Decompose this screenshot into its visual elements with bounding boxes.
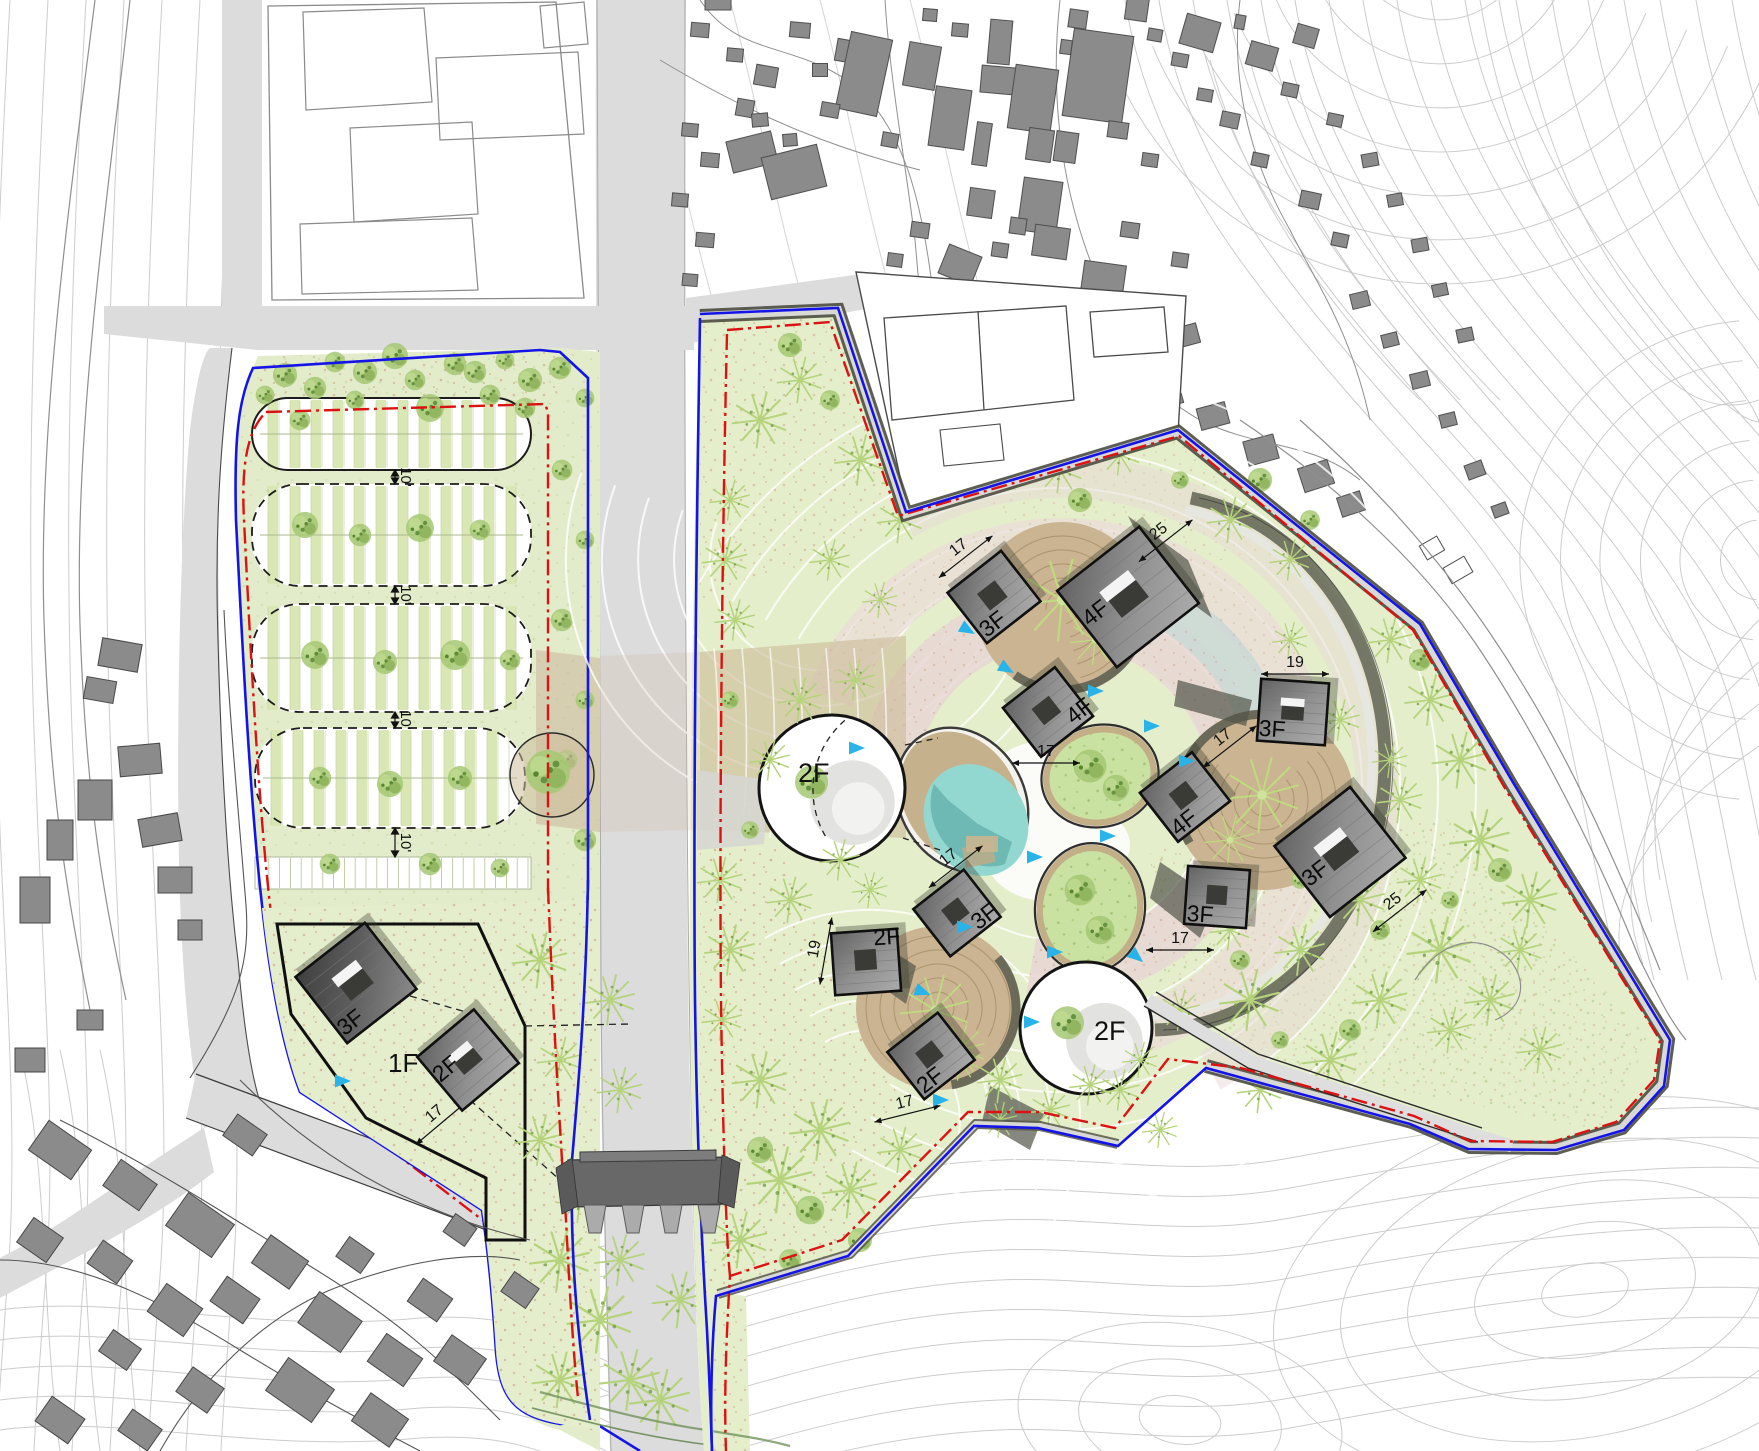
svg-text:2F: 2F [872,923,901,951]
svg-text:3F: 3F [1258,715,1287,743]
svg-text:2F: 2F [798,758,830,788]
svg-text:10': 10' [397,585,414,605]
svg-text:2F: 2F [1094,1016,1126,1046]
svg-text:17: 17 [1171,930,1189,947]
svg-text:10': 10' [397,833,414,853]
svg-text:19: 19 [805,939,825,960]
svg-text:10': 10' [397,710,414,730]
svg-text:10': 10' [397,467,414,487]
svg-text:17: 17 [1037,743,1055,760]
svg-text:3F: 3F [1186,900,1215,928]
svg-text:1F: 1F [388,1048,418,1078]
svg-text:19: 19 [1286,654,1304,671]
